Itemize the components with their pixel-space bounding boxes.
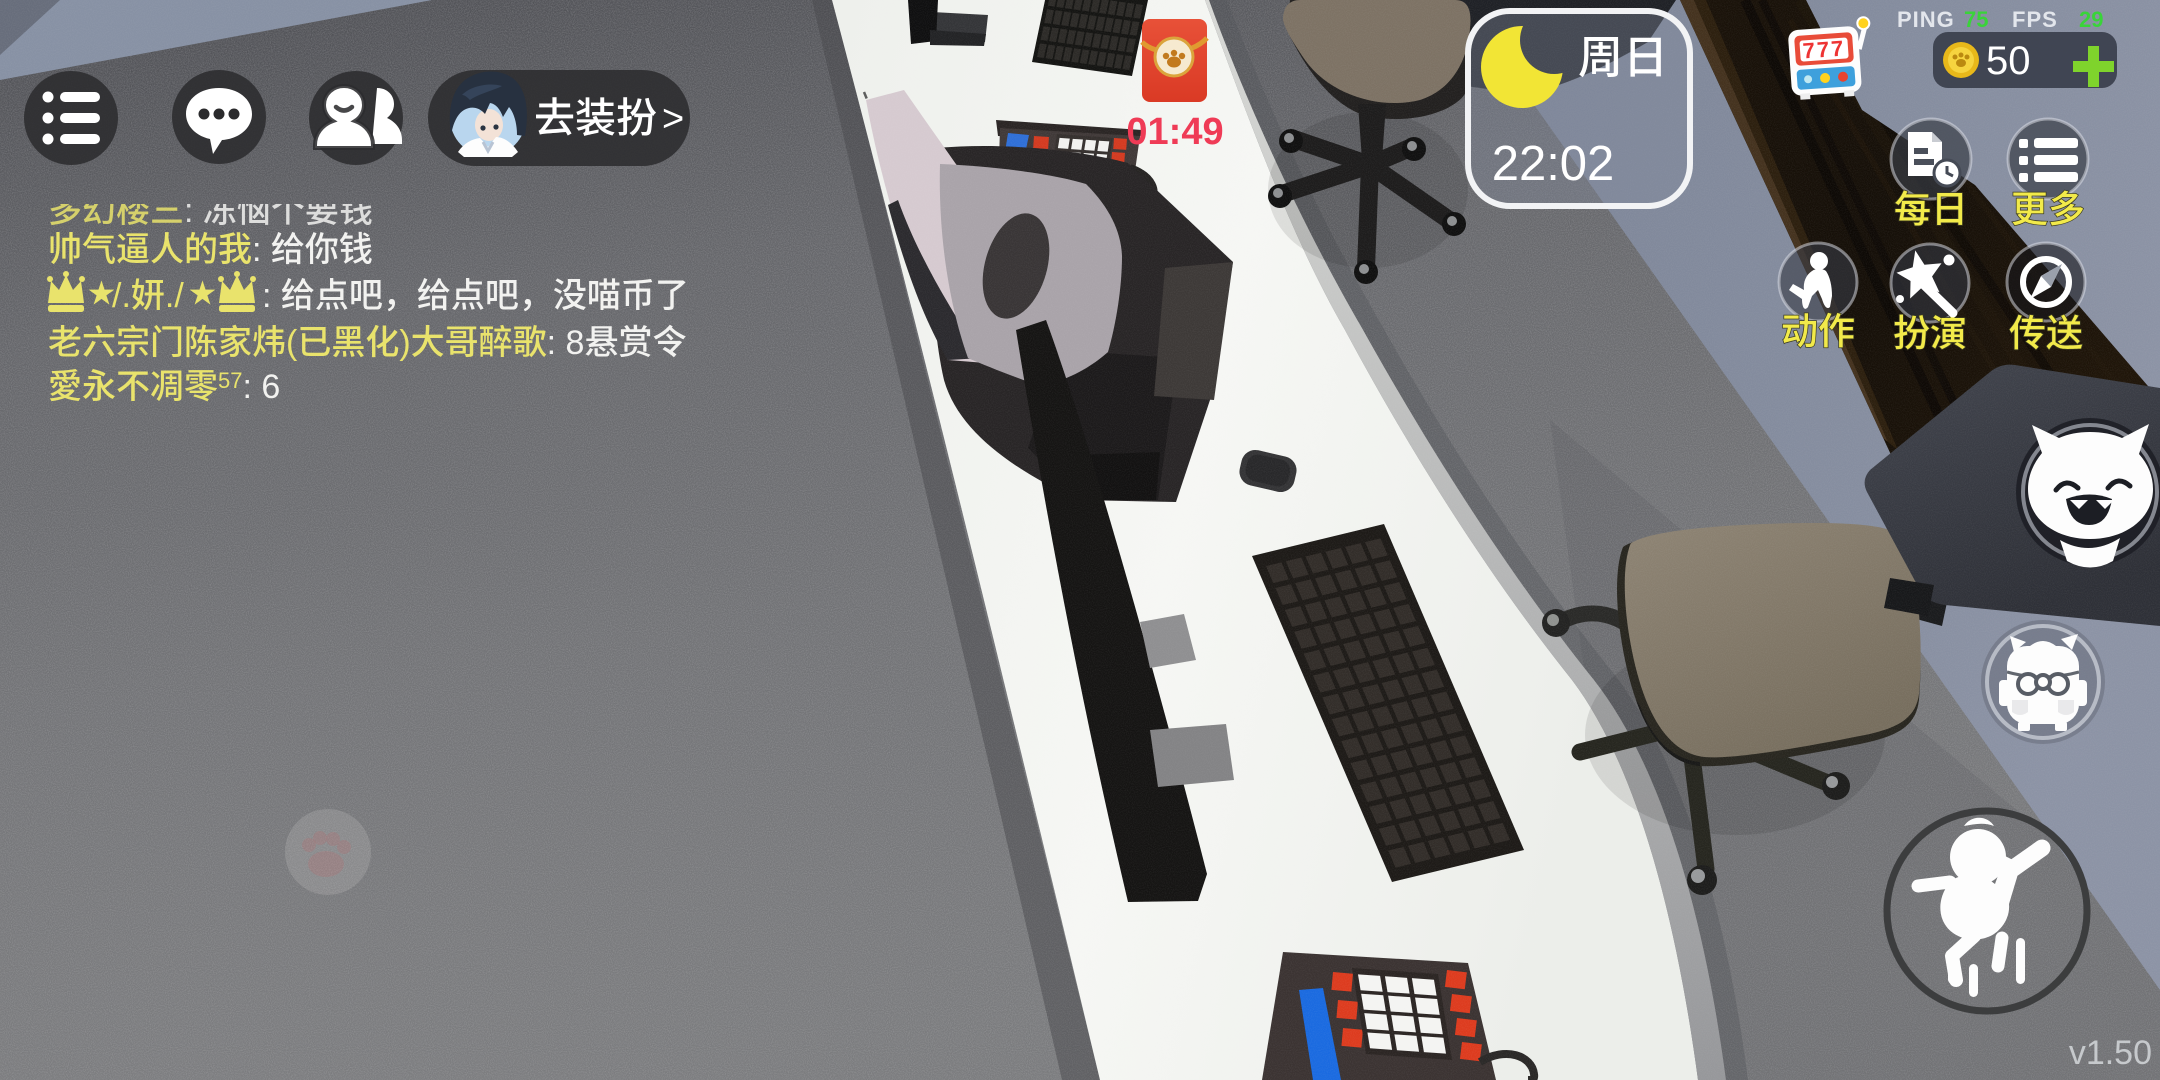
svg-text:/.妍./: /.妍./ (112, 268, 184, 317)
svg-text:更多: 更多 (2011, 179, 2085, 233)
svg-text:老六宗门陈家炜(已黑化)大哥醉歌: 8悬赏令: 老六宗门陈家炜(已黑化)大哥醉歌: 8悬赏令 (48, 315, 686, 364)
svg-text:愛永不凋零57: 6: 愛永不凋零57: 6 (48, 359, 280, 408)
svg-text:传送: 传送 (2009, 303, 2083, 357)
svg-text:去装扮: 去装扮 (534, 84, 657, 144)
svg-text:★: ★ (88, 272, 115, 311)
svg-text:周日: 周日 (1578, 21, 1668, 86)
svg-text:777: 777 (1802, 36, 1846, 64)
svg-text:>: > (662, 98, 684, 140)
svg-text:22:02: 22:02 (1492, 137, 1615, 191)
svg-text:75: 75 (1964, 7, 1988, 32)
svg-text:FPS: FPS (2012, 7, 2058, 32)
svg-text:01:49: 01:49 (1126, 111, 1223, 153)
svg-text:29: 29 (2079, 7, 2103, 32)
svg-text:PING: PING (1897, 7, 1955, 32)
svg-text:每日: 每日 (1894, 179, 1968, 233)
svg-text:动作: 动作 (1781, 301, 1855, 355)
svg-text:v1.50: v1.50 (2069, 1034, 2152, 1072)
svg-text:帅气逼人的我: 给你钱: 帅气逼人的我: 给你钱 (48, 222, 373, 271)
svg-text:50: 50 (1986, 39, 2031, 83)
svg-text:★: ★ (189, 272, 216, 311)
svg-text:: 给点吧，给点吧，没喵币了: : 给点吧，给点吧，没喵币了 (262, 268, 689, 317)
